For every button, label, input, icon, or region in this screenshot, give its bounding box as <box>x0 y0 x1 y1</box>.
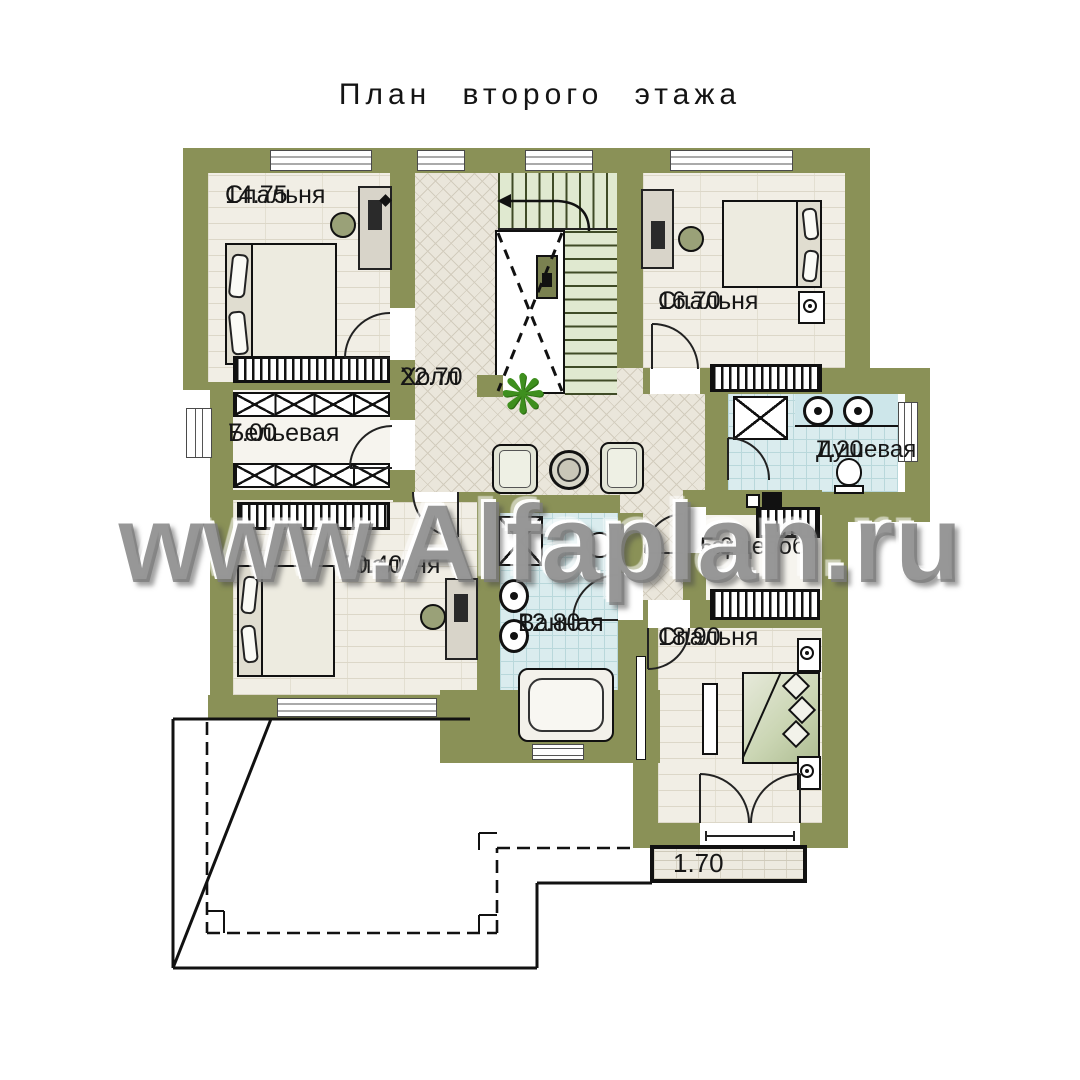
wardrobe-rack-tl <box>233 356 390 383</box>
chair-icon-l <box>420 604 446 630</box>
sliding-door-br <box>636 656 646 760</box>
sink-icon-shower-1 <box>803 396 833 426</box>
stair-upper-flight <box>498 173 617 230</box>
wardrobe-rack-tr <box>710 364 822 392</box>
radiator-icon-br-2 <box>797 756 821 790</box>
wall-bedroomtl-linen <box>208 382 392 390</box>
wall-right-upper <box>845 148 870 368</box>
door-gap-bedroom-tr <box>650 368 700 394</box>
door-gap-bedroom-tl <box>390 308 415 360</box>
floor-plan-canvas: План второго этажа ❋ <box>0 0 1080 1080</box>
linen-shelf-top <box>233 392 390 417</box>
window-top-1 <box>270 150 372 171</box>
bed-icon-tr <box>722 200 822 288</box>
radiator-icon-tr <box>798 291 825 324</box>
shower-stall-icon <box>733 396 788 440</box>
window-top-3 <box>525 150 593 171</box>
chair-icon-tr <box>678 226 704 252</box>
wall-left-upper <box>183 148 208 390</box>
desk-icon-tr <box>641 189 674 269</box>
window-bath <box>532 744 584 760</box>
plant-icon: ❋ <box>500 368 545 422</box>
bench-icon-br <box>702 683 718 755</box>
chair-icon-tl <box>330 212 356 238</box>
radiator-icon-br-1 <box>797 638 821 672</box>
wall-hall-bedroomtr <box>617 173 643 368</box>
page-title: План второго этажа <box>0 78 1080 112</box>
wall-shower-top <box>845 368 930 394</box>
wall-hall-shower <box>705 394 728 492</box>
bathtub-icon <box>518 668 614 742</box>
chimney <box>536 255 558 299</box>
roof-corner-ticks <box>207 833 497 933</box>
watermark: www.Alfaplan.ru <box>15 484 1065 605</box>
wall-stair-stub <box>477 375 503 397</box>
door-gap-linen <box>390 420 415 470</box>
window-bottom-left <box>277 698 437 717</box>
window-left <box>186 408 212 458</box>
window-top-2 <box>417 150 465 171</box>
bed-icon-tl <box>225 243 337 365</box>
sink-icon-shower-2 <box>843 396 873 426</box>
stair-right-flight <box>565 230 617 395</box>
window-top-4 <box>670 150 793 171</box>
